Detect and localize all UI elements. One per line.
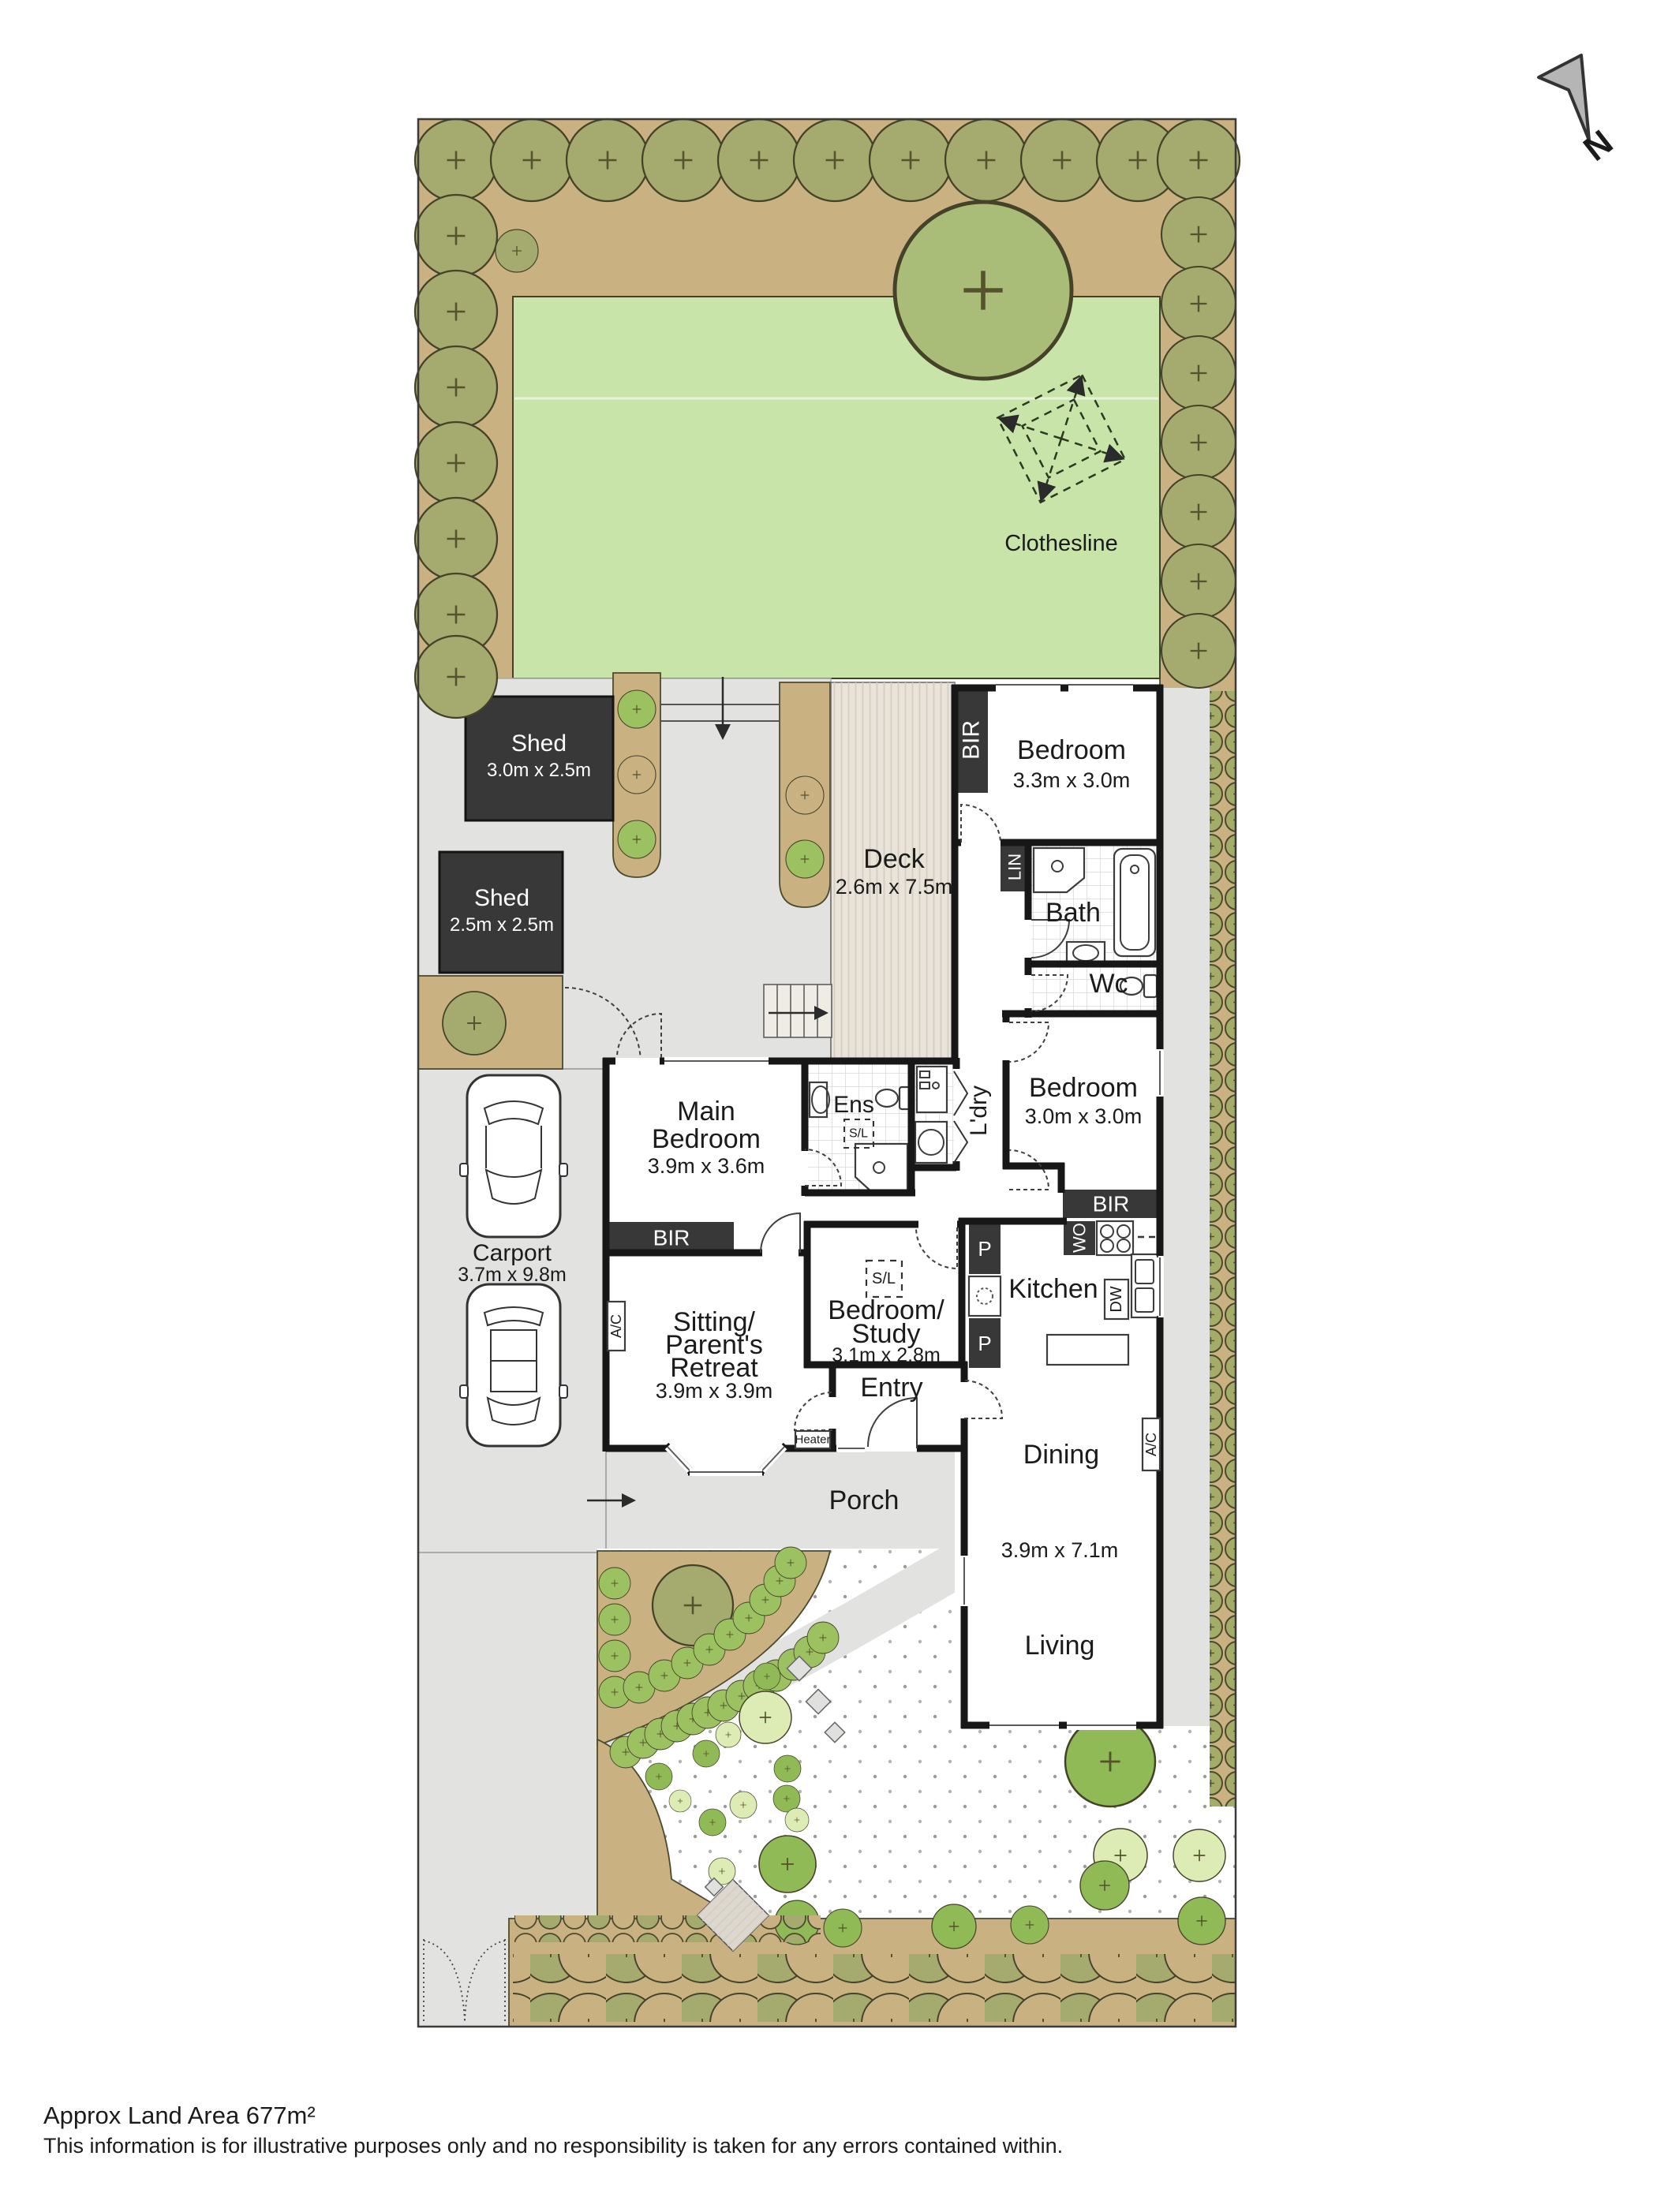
disclaimer-text: This information is for illustrative pur…: [43, 2134, 1063, 2158]
laundry-label: L'dry: [966, 1085, 992, 1136]
bir-main-label: BIR: [653, 1226, 690, 1250]
shed-large-label: Shed: [511, 730, 567, 757]
bedroom-rear-dims: 3.3m x 3.0m: [1013, 768, 1131, 792]
wc-label: Wc: [1089, 969, 1128, 999]
sitting-dims: 3.9m x 3.9m: [656, 1379, 773, 1403]
car: [460, 1284, 567, 1446]
north-arrow-icon: [1539, 55, 1589, 140]
kitchen-label: Kitchen: [1008, 1274, 1098, 1304]
main-bedroom-dims: 3.9m x 3.6m: [648, 1154, 765, 1178]
site-plan: Shed 3.0m x 2.5m Shed 2.5m x 2.5m: [0, 0, 1657, 2212]
ac-left-label: A/C: [608, 1314, 624, 1338]
bedroom-rear-label: Bedroom: [1017, 735, 1126, 765]
living-label: Living: [1025, 1631, 1095, 1661]
shed-small-label: Shed: [474, 885, 529, 911]
carport-dims: 3.7m x 9.8m: [458, 1264, 567, 1286]
dining-label: Dining: [1023, 1440, 1099, 1470]
lawn: [513, 297, 1160, 678]
heater-label: Heater: [795, 1433, 830, 1447]
north-label: N: [1577, 123, 1620, 169]
deck-label: Deck: [863, 844, 925, 874]
entry-label: Entry: [860, 1373, 922, 1403]
right-walkway: [1160, 688, 1236, 1807]
dishwasher-label: DW: [1108, 1286, 1125, 1312]
floor-plan-page: Shed 3.0m x 2.5m Shed 2.5m x 2.5m: [0, 0, 1657, 2212]
land-area-text: Approx Land Area 677m²: [43, 2102, 316, 2129]
main-bedroom-label-1: Main: [677, 1097, 735, 1127]
deck-dims: 2.6m x 7.5m: [836, 875, 953, 899]
car: [460, 1075, 567, 1237]
study-dims: 3.1m x 2.8m: [832, 1344, 941, 1366]
ac-right-label: A/C: [1143, 1433, 1159, 1456]
clothesline-label: Clothesline: [1004, 531, 1117, 556]
shed-large-dims: 3.0m x 2.5m: [487, 760, 591, 781]
linen-label: LIN: [1005, 854, 1025, 880]
pantry-1-label: P: [978, 1237, 991, 1261]
pantry-2-label: P: [978, 1332, 991, 1355]
front-boundary-tree-row: [513, 1954, 1236, 2022]
wall-oven-label: WO: [1070, 1223, 1090, 1253]
skylight-study-label: S/L: [872, 1270, 896, 1287]
skylight-ens-label: S/L: [849, 1127, 868, 1141]
living-dining-dims: 3.9m x 7.1m: [1001, 1538, 1119, 1562]
main-bedroom-label-2: Bedroom: [652, 1124, 761, 1154]
bedroom-mid-label: Bedroom: [1029, 1073, 1138, 1103]
bedroom-mid-dims: 3.0m x 3.0m: [1025, 1104, 1143, 1128]
bir-mid-label: BIR: [1093, 1192, 1130, 1216]
north-arrow: N: [1539, 55, 1620, 169]
shed-large: Shed 3.0m x 2.5m: [466, 697, 613, 820]
deck-stairs: [764, 985, 832, 1037]
footer: Approx Land Area 677m² This information …: [43, 2102, 1063, 2158]
bir-rear-label: BIR: [959, 720, 985, 760]
large-backyard-tree: [895, 202, 1072, 379]
shed-small-dims: 2.5m x 2.5m: [450, 914, 554, 936]
porch-label: Porch: [829, 1485, 900, 1515]
ensuite-label: Ens: [833, 1092, 874, 1118]
bath-label: Bath: [1045, 898, 1101, 928]
shed-small: Shed 2.5m x 2.5m: [439, 852, 563, 973]
carport-label: Carport: [473, 1240, 552, 1266]
front-shrub-row: [514, 1915, 821, 1942]
